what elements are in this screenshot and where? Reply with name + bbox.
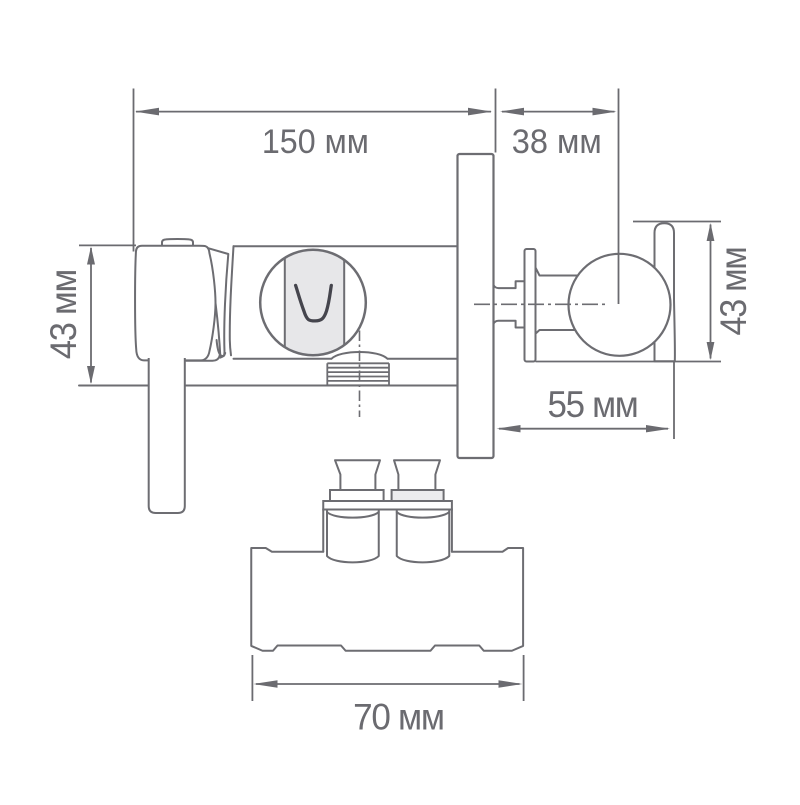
svg-text:70 мм: 70 мм [353,696,444,738]
svg-text:55 мм: 55 мм [548,383,638,425]
svg-text:38 мм: 38 мм [512,123,602,161]
svg-text:43 мм: 43 мм [42,270,84,359]
svg-text:150 мм: 150 мм [262,123,369,161]
svg-text:43 мм: 43 мм [712,248,754,336]
